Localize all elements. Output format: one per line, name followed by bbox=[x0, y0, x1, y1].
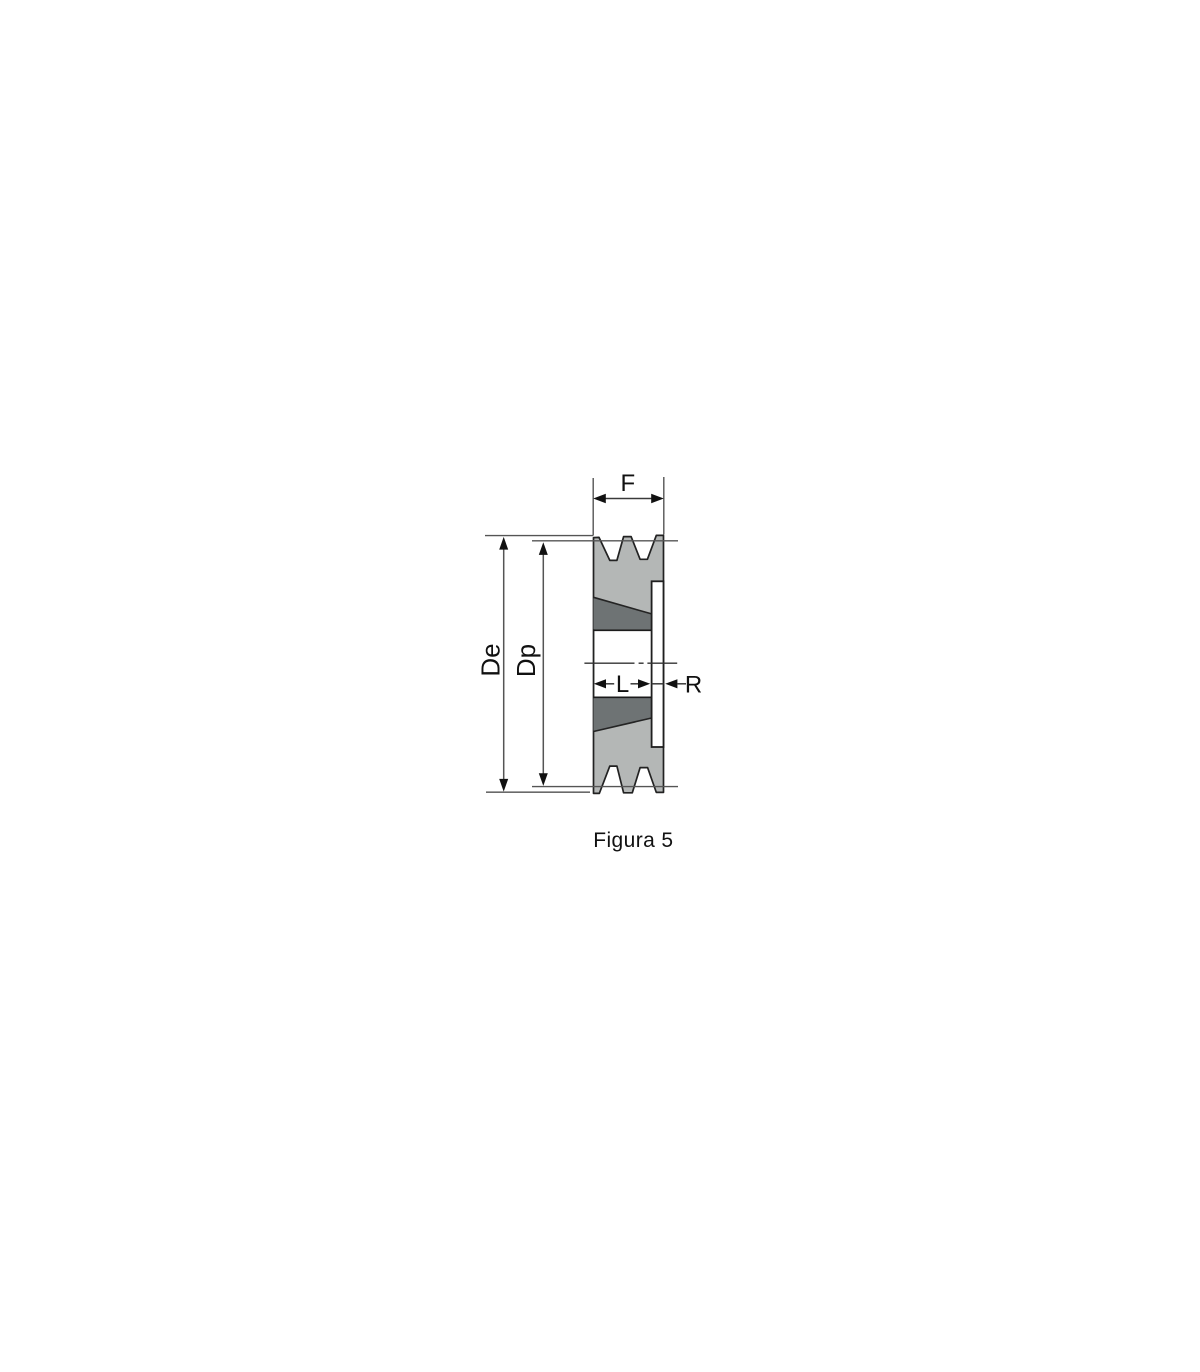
svg-text:Figura 5: Figura 5 bbox=[593, 829, 673, 852]
svg-text:Dp: Dp bbox=[511, 644, 541, 677]
svg-text:De: De bbox=[476, 643, 506, 676]
svg-text:F: F bbox=[620, 470, 635, 497]
svg-text:R: R bbox=[685, 671, 702, 698]
svg-text:L: L bbox=[616, 671, 629, 698]
